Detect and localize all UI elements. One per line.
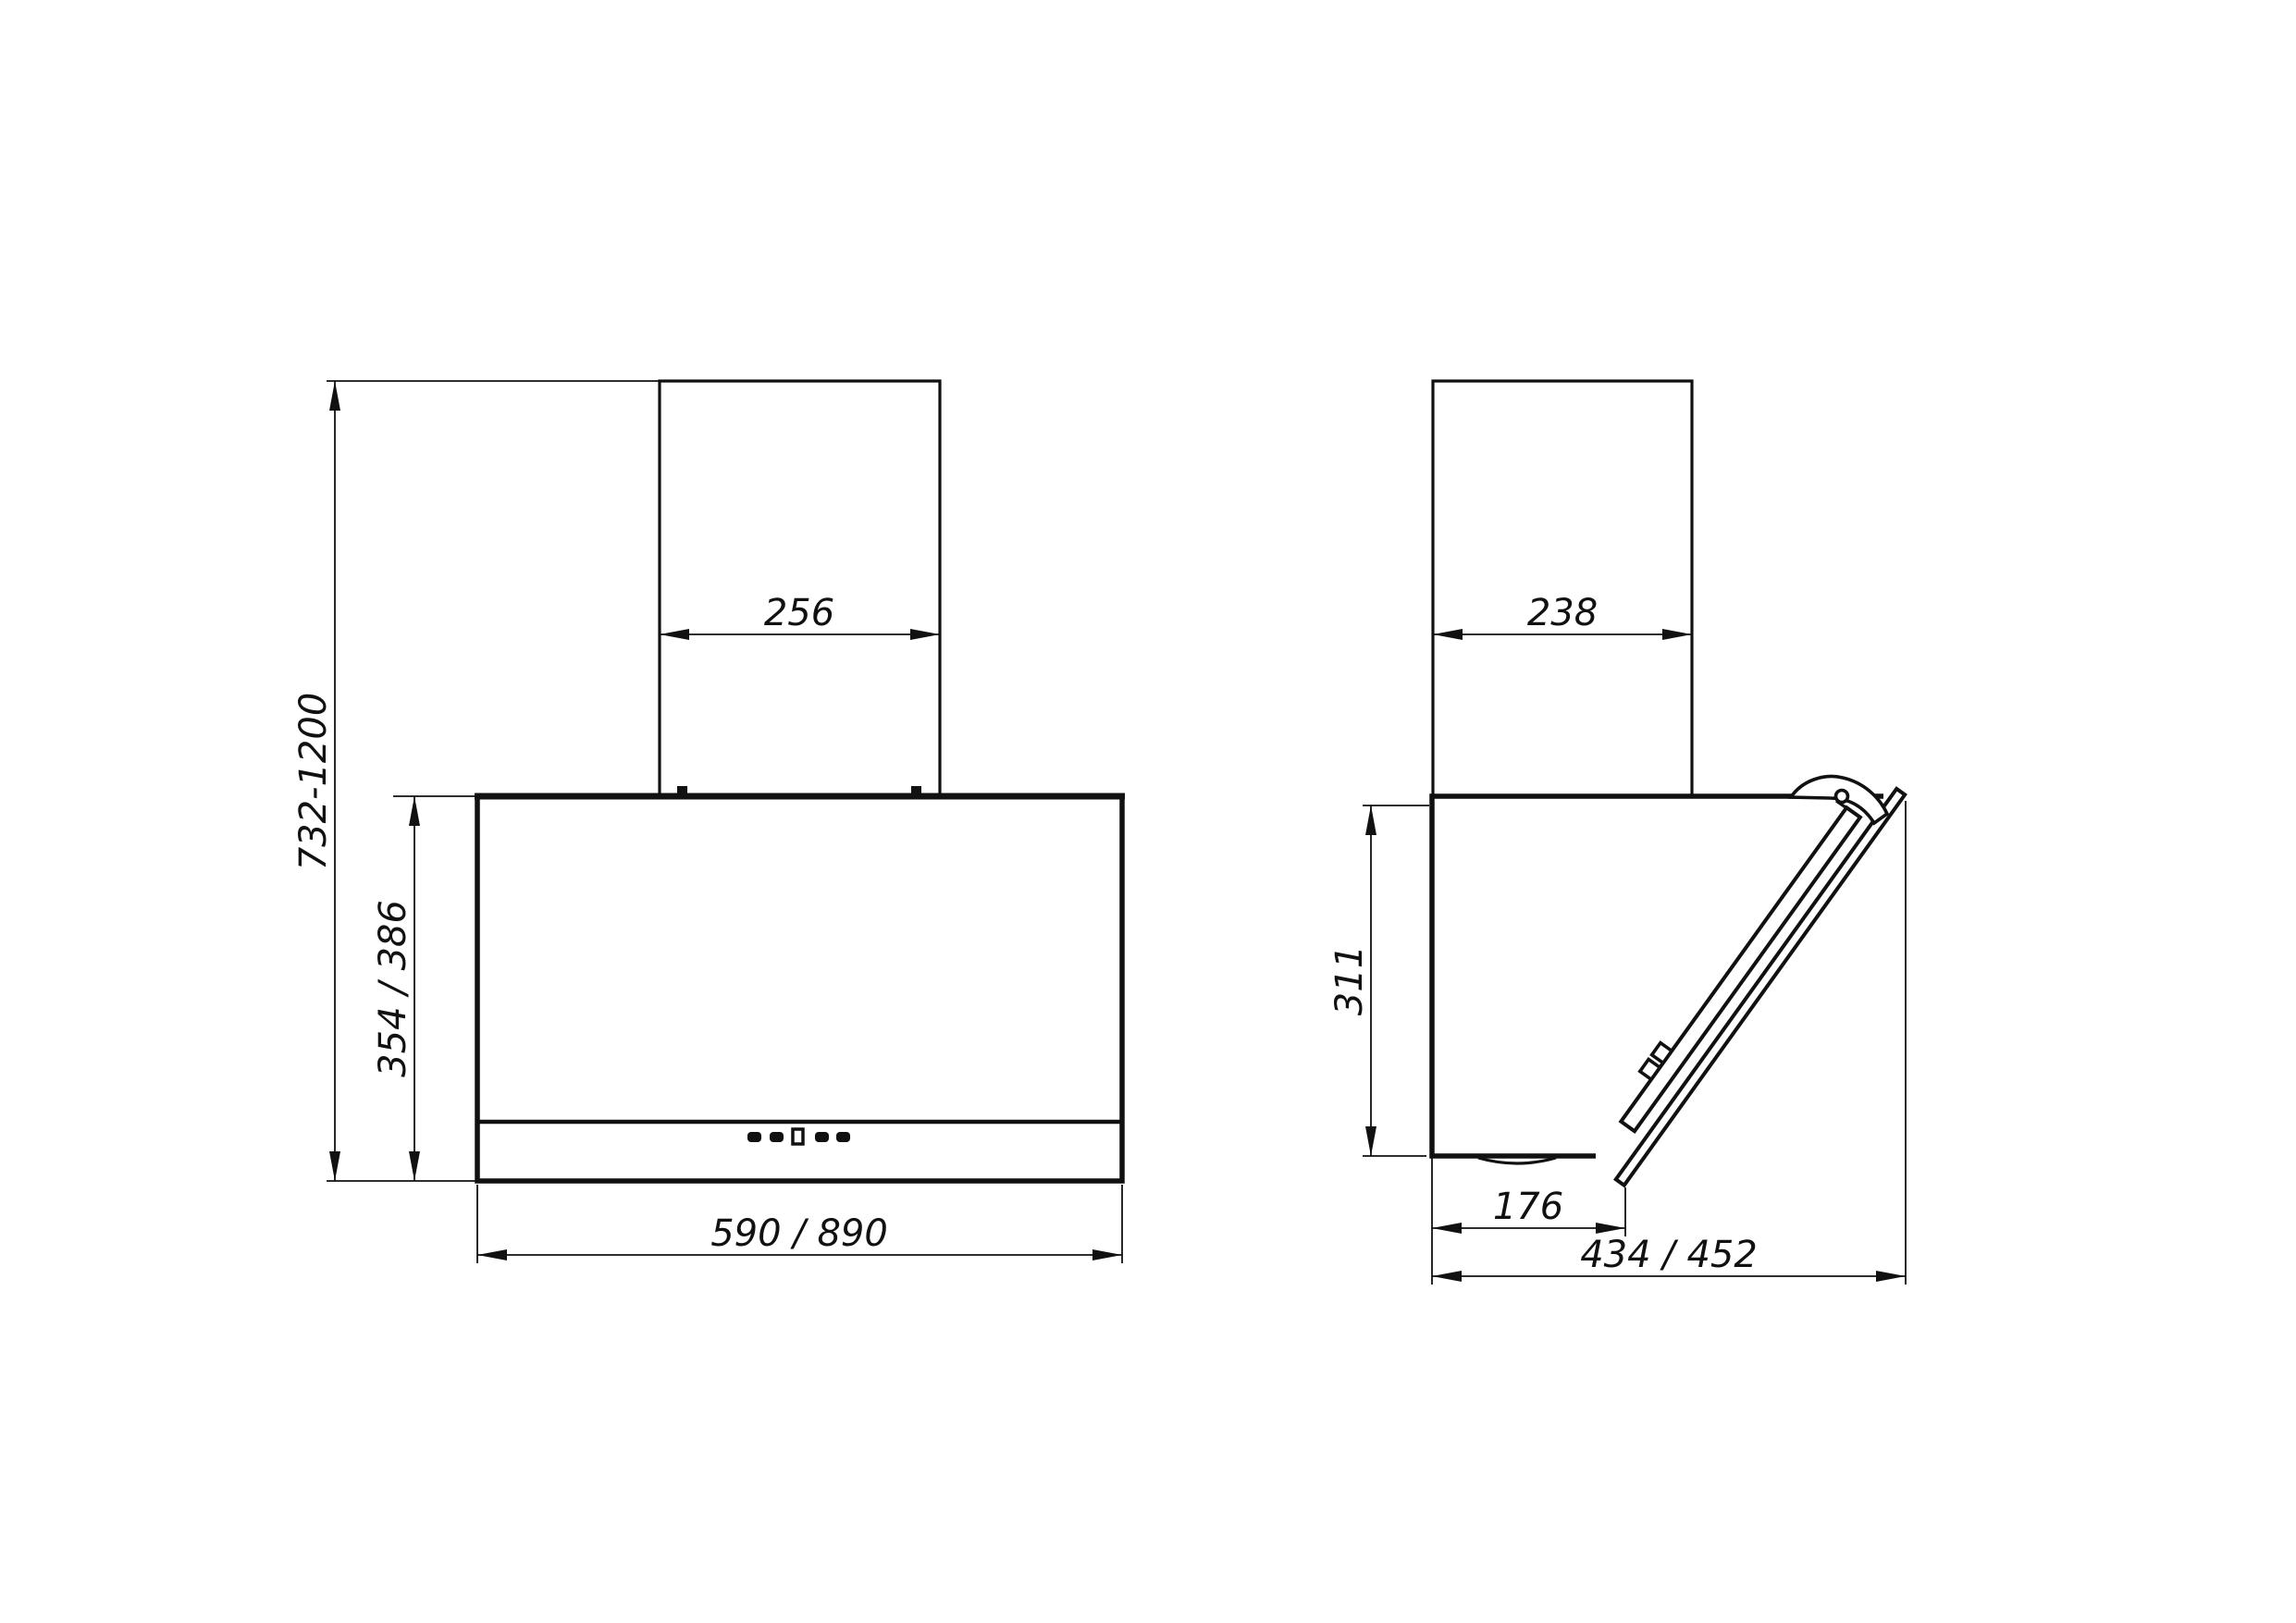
hood-dimension-drawing-page: 732-1200 354 / 386 256 590 / 890 bbox=[0, 0, 2296, 1623]
front-view bbox=[475, 381, 1125, 1181]
side-chimney bbox=[1433, 381, 1692, 796]
glass-panel bbox=[1616, 789, 1905, 1186]
dim-body-height-label: 354 / 386 bbox=[372, 900, 414, 1077]
dim-mount-height-label: 732-1200 bbox=[292, 693, 335, 871]
hinge-pivot bbox=[1836, 791, 1848, 803]
hood-dimension-drawing: 732-1200 354 / 386 256 590 / 890 bbox=[0, 0, 2296, 1623]
dim-rear-height-label: 311 bbox=[1328, 945, 1371, 1015]
side-view bbox=[1432, 381, 1905, 1186]
glass-frame-bar bbox=[1621, 807, 1860, 1131]
front-mount-tab-left bbox=[677, 786, 687, 796]
front-mount-tab-right bbox=[911, 786, 921, 796]
dim-chimney-depth-label: 238 bbox=[1527, 592, 1598, 634]
front-chimney bbox=[660, 381, 940, 796]
glass-panel-assembly bbox=[1581, 764, 1906, 1186]
dim-body-width-label: 590 / 890 bbox=[710, 1212, 888, 1255]
dim-lower-depth-label: 176 bbox=[1493, 1186, 1563, 1228]
dim-total-depth-label: 434 / 452 bbox=[1580, 1234, 1758, 1276]
dim-chimney-width-label: 256 bbox=[764, 592, 834, 634]
side-bottom-recess-arc bbox=[1478, 1158, 1556, 1163]
control-button-4 bbox=[836, 1132, 850, 1142]
control-button-3 bbox=[815, 1132, 829, 1142]
control-button-1 bbox=[747, 1132, 761, 1142]
control-button-2 bbox=[770, 1132, 784, 1142]
